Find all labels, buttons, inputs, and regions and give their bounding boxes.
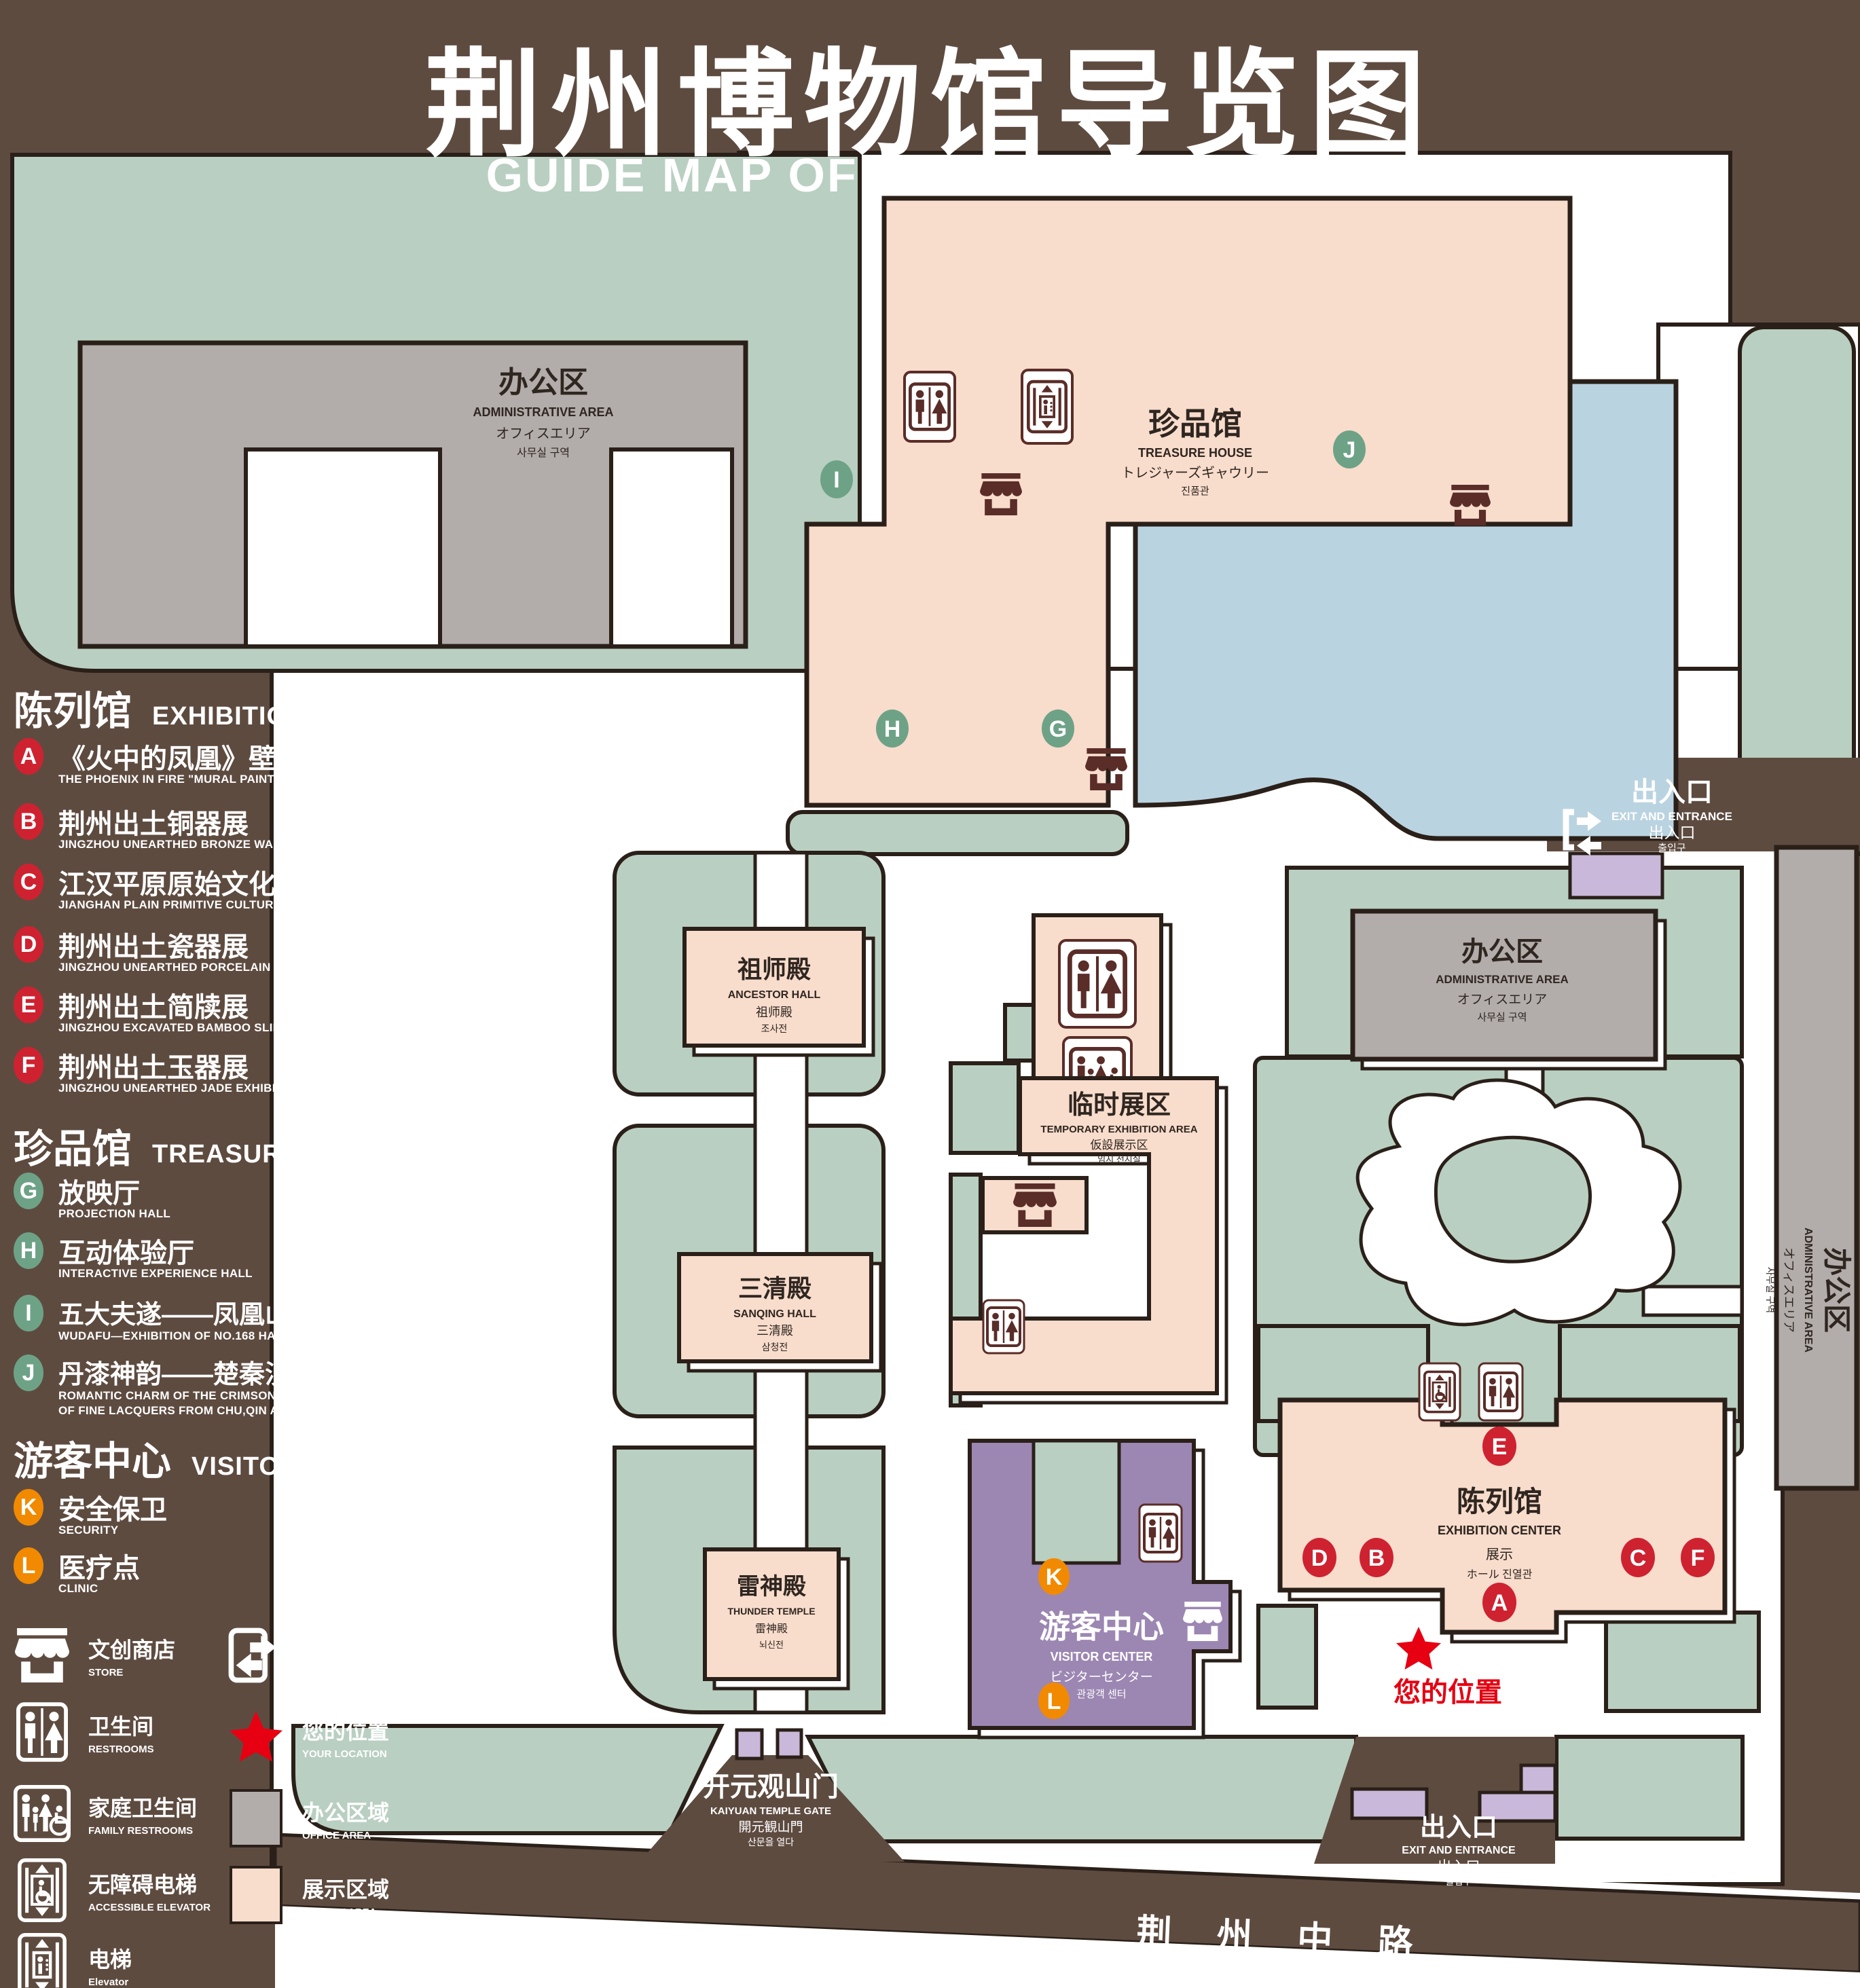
svg-text:EXIT AND ENTRANCE: EXIT AND ENTRANCE	[1611, 810, 1732, 823]
legend-icon-office-area: 办公区域 OFFICE AREA	[227, 1787, 389, 1849]
svg-text:祖师殿: 祖师殿	[756, 1006, 792, 1019]
legend-item-F: F 荆州出土玉器展 JINGZHOU UNEARTHED JADE EXHIBI…	[14, 1046, 477, 1111]
badge-C: C	[14, 864, 43, 900]
svg-text:E: E	[1492, 1434, 1508, 1460]
building-sanqing-hall: 三清殿 SANQING HALL 三清殿 삼청전	[679, 1254, 871, 1361]
svg-text:A: A	[1491, 1590, 1508, 1616]
svg-text:オフィスエリア: オフィスエリア	[1457, 993, 1548, 1007]
svg-text:出入口: 出入口	[1649, 824, 1696, 841]
legend-item-L: L 医疗点 CLINIC 1F	[14, 1546, 477, 1611]
badge-L: L	[14, 1547, 43, 1584]
svg-text:사무실 구역: 사무실 구역	[517, 447, 570, 459]
section-title-zh: 陈列馆	[14, 679, 132, 736]
floor-label: 1F	[445, 1490, 477, 1521]
legend-item-K: K 安全保卫 SECURITY 1F	[14, 1488, 477, 1553]
office-area-swatch	[230, 1789, 282, 1847]
badge-J: J	[14, 1355, 43, 1391]
svg-text:KAIYUAN TEMPLE GATE: KAIYUAN TEMPLE GATE	[710, 1805, 831, 1817]
legend-icon-accessible-elevator: 无障碍电梯 ACCESSIBLE ELEVATOR	[14, 1859, 211, 1921]
svg-text:EXIT AND ENTRANCE: EXIT AND ENTRANCE	[1402, 1845, 1516, 1856]
legend-section-exhibition-center: 陈列馆 EXHIBITION CENTER	[14, 679, 424, 736]
section-title-en: VISITOR CENTER	[192, 1452, 417, 1481]
floor-label: 2F	[445, 1048, 477, 1079]
svg-text:F: F	[1691, 1545, 1705, 1571]
svg-text:出入口: 出入口	[1438, 1859, 1480, 1875]
svg-text:ADMINISTRATIVE AREA: ADMINISTRATIVE AREA	[1436, 973, 1569, 986]
legend-icon-restrooms: 卫生间 RESTROOMS	[14, 1701, 154, 1763]
badge-G: G	[14, 1173, 43, 1209]
floor-label: 2F	[445, 988, 477, 1018]
svg-text:雷神殿: 雷神殿	[755, 1623, 788, 1635]
svg-text:TEMPORARY EXHIBITION AREA: TEMPORARY EXHIBITION AREA	[1040, 1124, 1197, 1135]
legend-section-visitor-center: 游客中心 VISITOR CENTER	[14, 1429, 417, 1486]
svg-text:三清殿: 三清殿	[738, 1274, 812, 1302]
svg-text:조사전: 조사전	[761, 1023, 788, 1034]
svg-text:仮設展示区: 仮設展示区	[1091, 1139, 1148, 1152]
page-subtitle: GUIDE MAP OF JINGZHOU MUSEUM	[0, 148, 1860, 202]
legend-item-E: E 荆州出土简牍展 JINGZHOU EXCAVATED BAMBOO SLIP…	[14, 985, 477, 1050]
svg-text:临时展区: 临时展区	[1068, 1091, 1171, 1120]
floor-label: 2F	[445, 1296, 477, 1327]
svg-text:뇌신전: 뇌신전	[759, 1640, 784, 1650]
svg-text:I: I	[833, 467, 839, 493]
svg-text:陈列馆: 陈列馆	[1457, 1486, 1542, 1517]
building-admin-mid: 办公区 ADMINISTRATIVE AREA オフィスエリア 사무실 구역	[1353, 911, 1656, 1059]
building-admin-right: 办公区 ADMINISTRATIVE AREA オフィスエリア 사무실 구역	[1765, 847, 1857, 1488]
svg-text:임시 전시실: 임시 전시실	[1097, 1154, 1140, 1164]
svg-text:ANCESTOR HALL: ANCESTOR HALL	[728, 989, 821, 1001]
legend-item-C: C 江汉平原原始文化展 JIANGHAN PLAIN PRIMITIVE CUL…	[14, 862, 477, 927]
legend-icon-elevator: 电梯 Elevator	[14, 1934, 132, 1988]
svg-text:VISITOR CENTER: VISITOR CENTER	[1051, 1650, 1153, 1663]
section-title-en: EXHIBITION CENTER	[152, 702, 424, 731]
section-title-en: TREASURE HOUSE	[152, 1140, 403, 1169]
svg-text:ビジターセンター: ビジターセンター	[1050, 1670, 1153, 1685]
building-thunder-temple: 雷神殿 THUNDER TEMPLE 雷神殿 뇌신전	[705, 1549, 839, 1679]
legend-item-J: J 丹漆神韵——楚秦汉漆器精品展 ROMANTIC CHARM OF THE C…	[14, 1353, 477, 1435]
badge-I: I	[14, 1295, 43, 1331]
svg-text:출입구: 출입구	[1446, 1876, 1472, 1887]
badge-B: B	[14, 803, 43, 840]
svg-text:開元観山門: 開元観山門	[738, 1820, 803, 1835]
svg-text:THUNDER TEMPLE: THUNDER TEMPLE	[727, 1606, 815, 1617]
svg-text:祖师殿: 祖师殿	[737, 955, 811, 983]
legend-icon-your-location: 您的位置 YOUR LOCATION	[227, 1706, 389, 1768]
badge-E: E	[14, 987, 43, 1023]
guide-map-canvas: 荆 州 中 路	[0, 0, 1860, 1988]
svg-text:산문을 열다: 산문을 열다	[748, 1837, 794, 1847]
floor-label: 1F	[445, 739, 477, 770]
svg-text:办公区: 办公区	[1461, 937, 1543, 967]
garden-island	[1436, 1137, 1590, 1262]
svg-text:珍品馆: 珍品馆	[1148, 406, 1242, 441]
svg-text:游客中心: 游客中心	[1039, 1609, 1164, 1644]
building-ancestor-hall: 祖师殿 ANCESTOR HALL 祖师殿 조사전	[685, 929, 864, 1046]
svg-text:관광객 센터: 관광객 센터	[1076, 1689, 1126, 1700]
svg-text:삼청전: 삼청전	[762, 1342, 788, 1352]
legend-section-treasure-house: 珍品馆 TREASURE HOUSE	[14, 1117, 403, 1174]
restroom-icon	[16, 1701, 68, 1763]
svg-text:三清殿: 三清殿	[756, 1324, 793, 1338]
svg-text:D: D	[1311, 1545, 1328, 1571]
floor-label: 1-2F	[421, 1356, 477, 1386]
svg-text:办公区: 办公区	[498, 366, 588, 399]
svg-text:办公区: 办公区	[1821, 1247, 1853, 1333]
svg-text:L: L	[1047, 1689, 1061, 1714]
floor-label: 1F	[445, 805, 477, 835]
svg-text:展示: 展示	[1486, 1547, 1513, 1562]
svg-text:雷神殿: 雷神殿	[737, 1574, 806, 1600]
svg-text:사무실 구역: 사무실 구역	[1765, 1267, 1776, 1313]
svg-text:ADMINISTRATIVE AREA: ADMINISTRATIVE AREA	[473, 405, 614, 419]
building-admin-top: 办公区 ADMINISTRATIVE AREA オフィスエリア 사무실 구역	[80, 343, 746, 646]
svg-text:オフィスエリア: オフィスエリア	[496, 426, 591, 441]
svg-text:SANQING HALL: SANQING HALL	[733, 1308, 816, 1320]
legend-item-D: D 荆州出土瓷器展 JINGZHOU UNEARTHED PORCELAIN E…	[14, 925, 477, 990]
legend-icon-family-restrooms: 家庭卫生间 FAMILY RESTROOMS	[14, 1782, 197, 1845]
building-visitor-center: 游客中心 VISITOR CENTER ビジターセンター 관광객 센터	[970, 1441, 1230, 1728]
accessible-elevator-icon	[18, 1858, 67, 1922]
badge-K: K	[14, 1489, 43, 1526]
svg-text:出入口: 出入口	[1420, 1814, 1497, 1842]
elevator-icon	[1028, 382, 1065, 432]
svg-text:ホール 진열관: ホール 진열관	[1467, 1568, 1533, 1581]
legend-item-B: B 荆州出土铜器展 JINGZHOU UNEARTHED BRONZE WARE…	[14, 802, 477, 867]
display-area-swatch	[230, 1866, 282, 1924]
legend-item-G: G 放映厅 PROJECTION HALL 1F	[14, 1171, 477, 1236]
badge-A: A	[14, 738, 43, 775]
svg-text:开元观山门: 开元观山门	[703, 1772, 839, 1802]
svg-text:H: H	[884, 716, 901, 742]
svg-text:ADMINISTRATIVE AREA: ADMINISTRATIVE AREA	[1802, 1228, 1814, 1352]
legend-icon-exit: 出入口 EXIT AND ENTRANCE	[227, 1624, 409, 1687]
section-title-zh: 珍品馆	[14, 1117, 132, 1174]
svg-text:사무실 구역: 사무실 구역	[1477, 1012, 1527, 1023]
svg-text:C: C	[1630, 1545, 1647, 1571]
svg-text:출입구: 출입구	[1658, 843, 1685, 854]
badge-H: H	[14, 1232, 43, 1269]
badge-F: F	[14, 1047, 43, 1084]
floor-label: 1F	[445, 1174, 477, 1204]
floor-label: 1F	[445, 1549, 477, 1579]
svg-text:J: J	[1343, 437, 1356, 463]
exit-icon	[228, 1627, 284, 1683]
svg-text:K: K	[1046, 1564, 1063, 1590]
floor-label: 1F	[445, 865, 477, 896]
legend-item-I: I 五大夫遂——凤凰山168号汉墓展 WUDAFU—EXHIBITION OF …	[14, 1293, 477, 1359]
legend-icon-display-area: 展示区域 DISPLAY AREA	[227, 1864, 389, 1926]
legend-icon-store: 文创商店 STORE	[14, 1624, 175, 1687]
floor-label: 2F	[445, 927, 477, 958]
legend-item-H: H 互动体验厅 INTERACTIVE EXPERIENCE HALL 1F	[14, 1231, 477, 1296]
svg-text:EXHIBITION CENTER: EXHIBITION CENTER	[1438, 1524, 1561, 1537]
svg-text:B: B	[1368, 1545, 1385, 1571]
location-star	[230, 1711, 282, 1763]
svg-text:G: G	[1049, 716, 1067, 742]
svg-text:TREASURE HOUSE: TREASURE HOUSE	[1138, 446, 1252, 460]
legend-item-A: A 《火中的凤凰》壁画 THE PHOENIX IN FIRE "MURAL P…	[14, 737, 477, 802]
family-restroom-icon	[14, 1785, 71, 1842]
svg-text:진품관: 진품관	[1181, 485, 1209, 497]
svg-text:オフィスエリア: オフィスエリア	[1782, 1247, 1795, 1333]
elevator-icon	[18, 1933, 67, 1988]
floor-label: 1F	[445, 1234, 477, 1264]
svg-text:トレジャーズギャウリー: トレジャーズギャウリー	[1121, 465, 1269, 481]
svg-text:您的位置: 您的位置	[1393, 1678, 1502, 1708]
store-icon	[15, 1627, 69, 1683]
section-title-zh: 游客中心	[14, 1429, 171, 1486]
badge-D: D	[14, 926, 43, 963]
svg-text:出入口: 出入口	[1631, 777, 1713, 807]
